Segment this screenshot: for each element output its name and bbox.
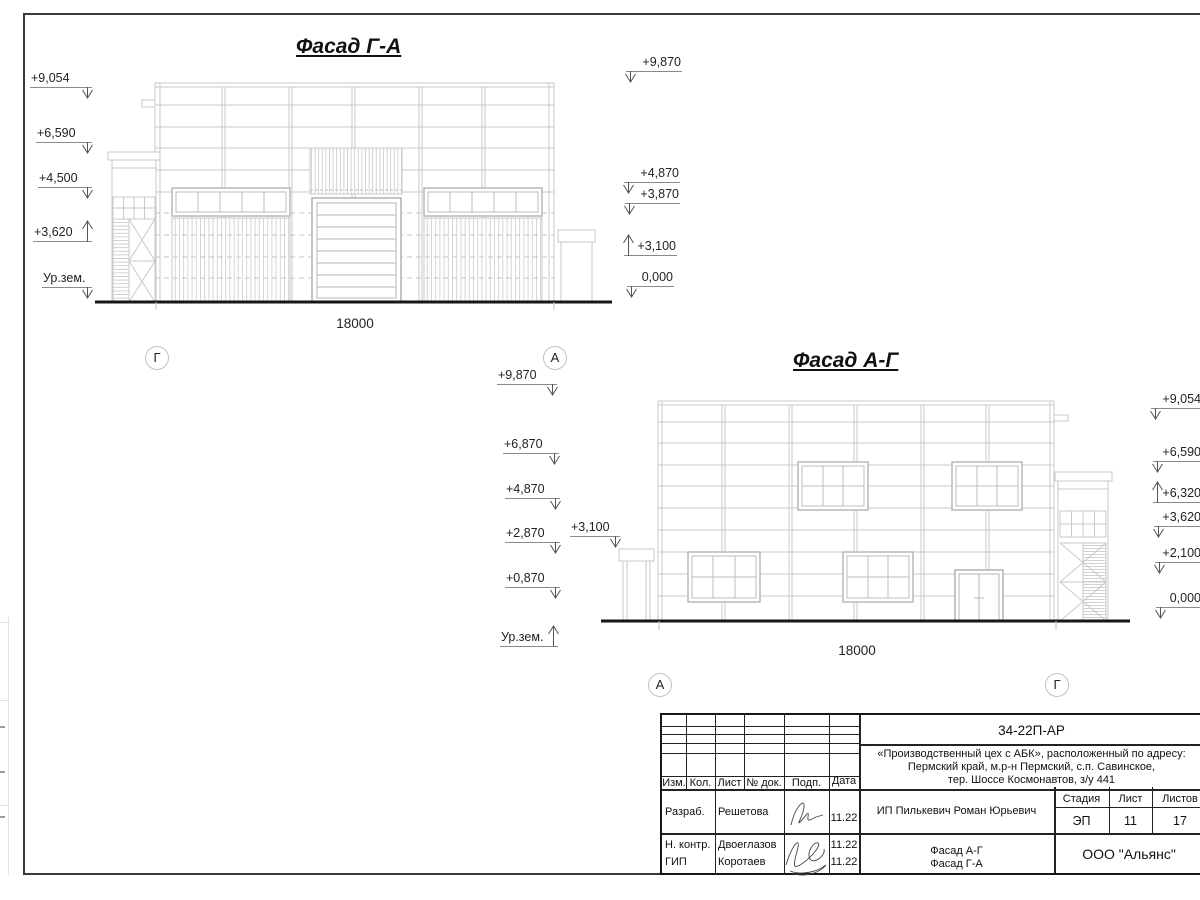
elevation-mark: +6,870 xyxy=(503,438,559,454)
elevation-mark: +2,870 xyxy=(505,527,560,543)
elevation-arrow-down-icon xyxy=(1152,526,1165,539)
elevation-mark: +9,870 xyxy=(626,56,682,72)
stage-value: ЭП xyxy=(1054,814,1109,828)
window-band-left xyxy=(172,188,290,216)
window-lower-left xyxy=(688,552,760,602)
margin-fragment-dash xyxy=(0,771,5,773)
elevation-arrow-down-icon xyxy=(548,453,561,466)
facade2-drawing xyxy=(600,395,1135,630)
canopy-left xyxy=(619,549,654,621)
elevation-arrow-up-icon xyxy=(1151,480,1164,503)
sheets-value: 17 xyxy=(1152,814,1200,828)
signature xyxy=(785,793,829,833)
elevation-mark: +4,500 xyxy=(38,172,92,188)
facade1-axis-right: А xyxy=(543,346,567,370)
elevation-arrow-down-icon xyxy=(549,587,562,600)
margin-fragment-dash xyxy=(0,726,5,728)
col-data: Дата xyxy=(829,775,859,787)
elevation-mark: +9,870 xyxy=(497,369,557,385)
stair-tower-right xyxy=(1055,472,1112,621)
window-lower-center xyxy=(843,552,913,602)
facade2-axis-right: Г xyxy=(1045,673,1069,697)
elevation-mark: +3,100 xyxy=(624,240,677,256)
col-list: Лист xyxy=(715,777,744,789)
organization-name: ООО "Альянс" xyxy=(1054,846,1200,862)
project-name-line3: тер. Шоссе Космонавтов, з/у 441 xyxy=(859,774,1200,786)
client-name: ИП Пилькевич Роман Юрьевич xyxy=(859,805,1054,817)
normcontrol-name: Двоеглазов xyxy=(718,839,776,851)
elevation-mark: +3,620 xyxy=(1154,511,1200,527)
elevation-mark: 0,000 xyxy=(627,271,674,287)
margin-fragment-line xyxy=(0,805,8,806)
slat-strip xyxy=(310,148,402,194)
entrance-door xyxy=(955,570,1003,621)
window-upper-right xyxy=(952,462,1022,510)
elevation-mark: +2,100 xyxy=(1155,547,1200,563)
margin-fragment-line xyxy=(0,700,8,701)
signature xyxy=(782,835,832,876)
col-izm: Изм. xyxy=(662,777,686,789)
elevation-mark: +3,870 xyxy=(625,188,680,204)
elevation-arrow-down-icon xyxy=(81,187,94,200)
facade2-title: Фасад А-Г xyxy=(793,349,898,373)
annex-right xyxy=(558,230,595,302)
drawing-sheet: { "facade1": { "title": "Фасад Г-А", "di… xyxy=(0,0,1200,900)
sheet-title-line1: Фасад А-Г xyxy=(859,845,1054,857)
margin-fragment-dash xyxy=(0,816,5,818)
sheets-label: Листов xyxy=(1152,793,1200,805)
elevation-mark: +4,870 xyxy=(624,167,680,183)
gip-date: 11.22 xyxy=(829,856,859,868)
col-podp: Подп. xyxy=(784,777,829,789)
elevation-arrow-down-icon xyxy=(81,287,94,300)
elevation-arrow-up-icon xyxy=(81,219,94,242)
elevation-arrow-down-icon xyxy=(549,542,562,555)
normcontrol-date: 11.22 xyxy=(829,839,859,851)
elevation-mark: +6,590 xyxy=(36,127,92,143)
margin-fragment-line xyxy=(0,622,8,623)
sheet-value: 11 xyxy=(1109,814,1152,828)
role-developer: Разраб. xyxy=(665,806,705,818)
stage-label: Стадия xyxy=(1054,793,1109,805)
project-name-line2: Пермский край, м.р-н Пермский, с.п. Сави… xyxy=(859,761,1200,773)
elevation-mark: Ур.зем. xyxy=(42,272,92,288)
developer-name: Решетова xyxy=(718,806,768,818)
elevation-arrow-down-icon xyxy=(1151,461,1164,474)
elevation-arrow-down-icon xyxy=(623,203,636,216)
doc-number: 34-22П-АР xyxy=(859,723,1200,738)
elevation-arrow-down-icon xyxy=(1154,607,1167,620)
elevation-mark: +3,100 xyxy=(570,521,620,537)
facade2-dimension: 18000 xyxy=(827,643,887,658)
margin-fragment-line xyxy=(8,617,9,875)
window-band-right xyxy=(424,188,542,216)
frame-left xyxy=(23,13,25,875)
elevation-mark: +3,620 xyxy=(33,226,92,242)
elevation-arrow-down-icon xyxy=(81,142,94,155)
col-kol: Кол. xyxy=(686,777,715,789)
elevation-mark: +6,320 xyxy=(1153,487,1200,503)
gate xyxy=(312,198,401,302)
elevation-mark: Ур.зем. xyxy=(500,631,558,647)
elevation-mark: 0,000 xyxy=(1156,592,1200,608)
elevation-arrow-down-icon xyxy=(549,498,562,511)
title-block: Изм. Кол. Лист № док. Подп. Дата Разраб.… xyxy=(660,713,1200,875)
role-normcontrol: Н. контр. xyxy=(665,839,710,851)
window-upper-center xyxy=(798,462,868,510)
elevation-arrow-down-icon xyxy=(624,71,637,84)
elevation-mark: +0,870 xyxy=(505,572,560,588)
elevation-arrow-up-icon xyxy=(622,233,635,256)
elevation-arrow-down-icon xyxy=(609,536,622,549)
frame-top xyxy=(23,13,1200,15)
siding-right xyxy=(424,218,542,302)
elevation-arrow-down-icon xyxy=(81,87,94,100)
col-doc: № док. xyxy=(744,777,784,789)
project-name-line1: «Производственный цех с АБК», расположен… xyxy=(859,748,1200,760)
stair-tower-left xyxy=(108,152,160,302)
role-gip: ГИП xyxy=(665,856,687,868)
elevation-arrow-up-icon xyxy=(547,624,560,647)
elevation-arrow-down-icon xyxy=(625,286,638,299)
developer-date: 11.22 xyxy=(829,812,859,824)
facade1-title: Фасад Г-А xyxy=(296,35,401,59)
elevation-mark: +9,054 xyxy=(30,72,92,88)
facade2-axis-left: А xyxy=(648,673,672,697)
facade1-dimension: 18000 xyxy=(325,316,385,331)
elevation-mark: +6,590 xyxy=(1153,446,1200,462)
sheet-title-line2: Фасад Г-А xyxy=(859,858,1054,870)
elevation-arrow-down-icon xyxy=(1153,562,1166,575)
gip-name: Коротаев xyxy=(718,856,766,868)
elevation-arrow-down-icon xyxy=(546,384,559,397)
elevation-mark: +4,870 xyxy=(505,483,560,499)
elevation-arrow-down-icon xyxy=(1149,408,1162,421)
siding-left xyxy=(172,218,290,302)
facade1-axis-left: Г xyxy=(145,346,169,370)
sheet-label: Лист xyxy=(1109,793,1152,805)
elevation-mark: +9,054 xyxy=(1151,393,1200,409)
facade1-drawing xyxy=(95,78,615,310)
